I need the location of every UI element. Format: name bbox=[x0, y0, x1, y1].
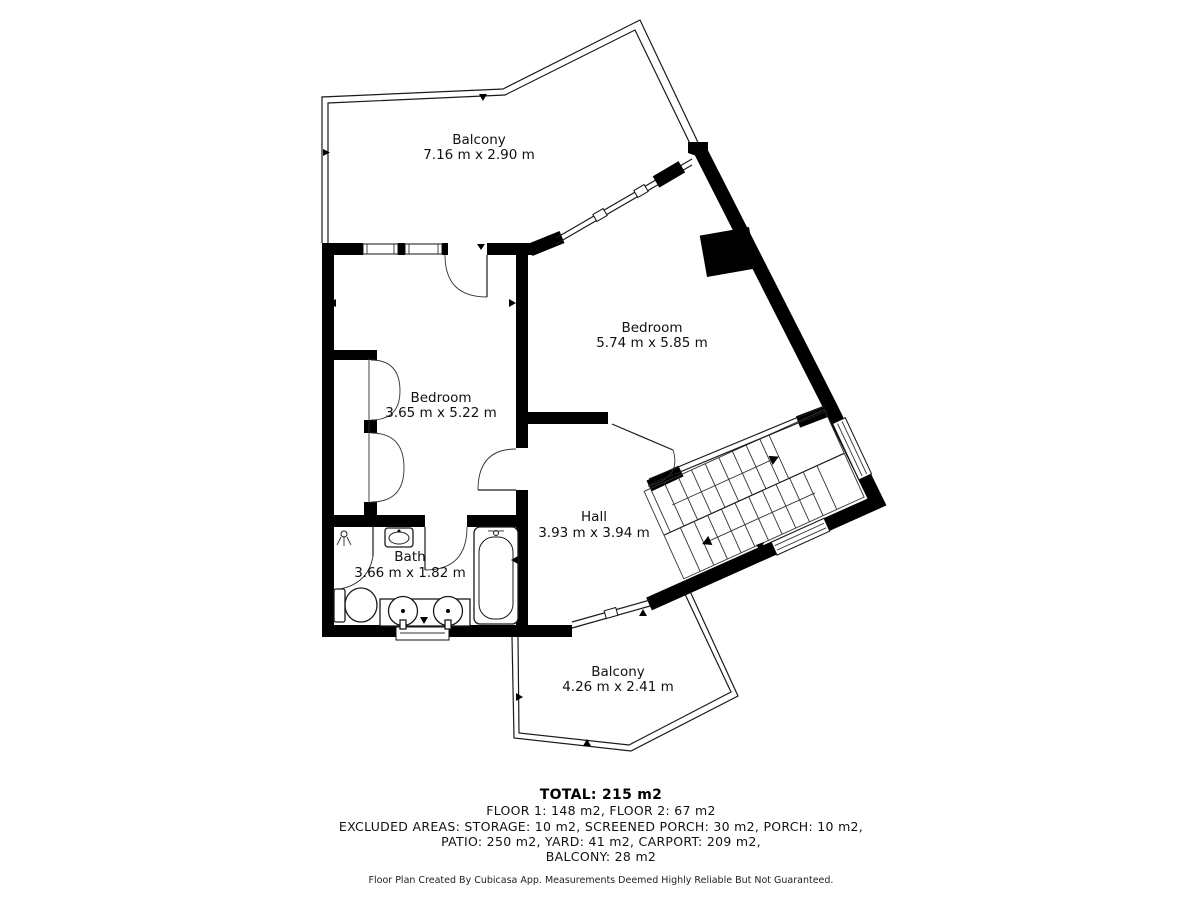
window-hall-bottom bbox=[572, 600, 650, 628]
room-dims-bath: 3.66 m x 1.82 m bbox=[354, 565, 466, 581]
window-bedroom1-b bbox=[405, 244, 442, 254]
marker-icon bbox=[323, 149, 330, 156]
summary-total: TOTAL: 215 m2 bbox=[540, 787, 662, 803]
wall-divider-upper bbox=[516, 243, 528, 448]
fireplace-block bbox=[700, 227, 757, 277]
summary-excluded-3: BALCONY: 28 m2 bbox=[546, 849, 656, 864]
shower-head-icon bbox=[341, 531, 347, 537]
room-label-balcony-top: Balcony bbox=[452, 132, 506, 148]
door-bedroom1-top bbox=[445, 255, 487, 297]
room-dims-balcony-top: 7.16 m x 2.90 m bbox=[423, 147, 535, 163]
marker-icon bbox=[477, 244, 485, 250]
closet-mid-stub bbox=[364, 420, 377, 433]
room-label-hall: Hall bbox=[581, 509, 607, 525]
wall-diagonal-chain bbox=[649, 150, 877, 604]
floor-plan-page: Balcony 7.16 m x 2.90 m Bedroom 5.74 m x… bbox=[0, 0, 1200, 900]
summary-excluded-1: EXCLUDED AREAS: STORAGE: 10 m2, SCREENED… bbox=[339, 819, 863, 834]
closet-bottom-stub bbox=[364, 502, 377, 515]
stair-arrow-up bbox=[670, 452, 781, 509]
room-label-balcony-bottom: Balcony bbox=[591, 664, 645, 680]
door-bedroom1-hall bbox=[478, 449, 516, 490]
room-label-bedroom-left: Bedroom bbox=[410, 390, 471, 406]
wall-top-mullion bbox=[398, 243, 405, 255]
room-dims-bedroom-left: 3.65 m x 5.22 m bbox=[385, 405, 497, 421]
room-dims-hall: 3.93 m x 3.94 m bbox=[538, 525, 650, 541]
disclaimer-footer: Floor Plan Created By Cubicasa App. Meas… bbox=[369, 875, 834, 886]
room-dims-balcony-bottom: 4.26 m x 2.41 m bbox=[562, 679, 674, 695]
window-hall-diag bbox=[771, 518, 830, 555]
window-bedroom1-a bbox=[363, 244, 398, 254]
summary-floors: FLOOR 1: 148 m2, FLOOR 2: 67 m2 bbox=[486, 803, 716, 818]
floor-plan-canvas: Balcony 7.16 m x 2.90 m Bedroom 5.74 m x… bbox=[0, 0, 1200, 900]
door-bath bbox=[425, 527, 467, 570]
window-wall-diagonal bbox=[556, 159, 692, 244]
top-balcony-railing bbox=[322, 20, 703, 243]
area-summary: TOTAL: 215 m2 FLOOR 1: 148 m2, FLOOR 2: … bbox=[339, 787, 863, 886]
bathtub bbox=[474, 527, 518, 624]
marker-icon bbox=[639, 609, 647, 616]
room-dims-bedroom-big: 5.74 m x 5.85 m bbox=[596, 335, 708, 351]
marker-icon bbox=[479, 94, 487, 101]
marker-icon bbox=[516, 693, 523, 701]
window-wall-stub-upper bbox=[653, 161, 685, 187]
marker-icon bbox=[509, 299, 516, 307]
room-label-bath: Bath bbox=[394, 549, 425, 565]
wall-top-stub bbox=[442, 243, 448, 255]
sink bbox=[385, 528, 413, 547]
wall-hall-top bbox=[528, 412, 608, 424]
vanity bbox=[380, 597, 470, 630]
wall-bath-top-right bbox=[467, 515, 516, 527]
closet-top-wall bbox=[334, 350, 377, 360]
toilet bbox=[334, 588, 377, 622]
summary-excluded-2: PATIO: 250 m2, YARD: 41 m2, CARPORT: 209… bbox=[441, 834, 761, 849]
room-label-bedroom-big: Bedroom bbox=[621, 320, 682, 336]
wall-bath-top-left bbox=[334, 515, 425, 527]
